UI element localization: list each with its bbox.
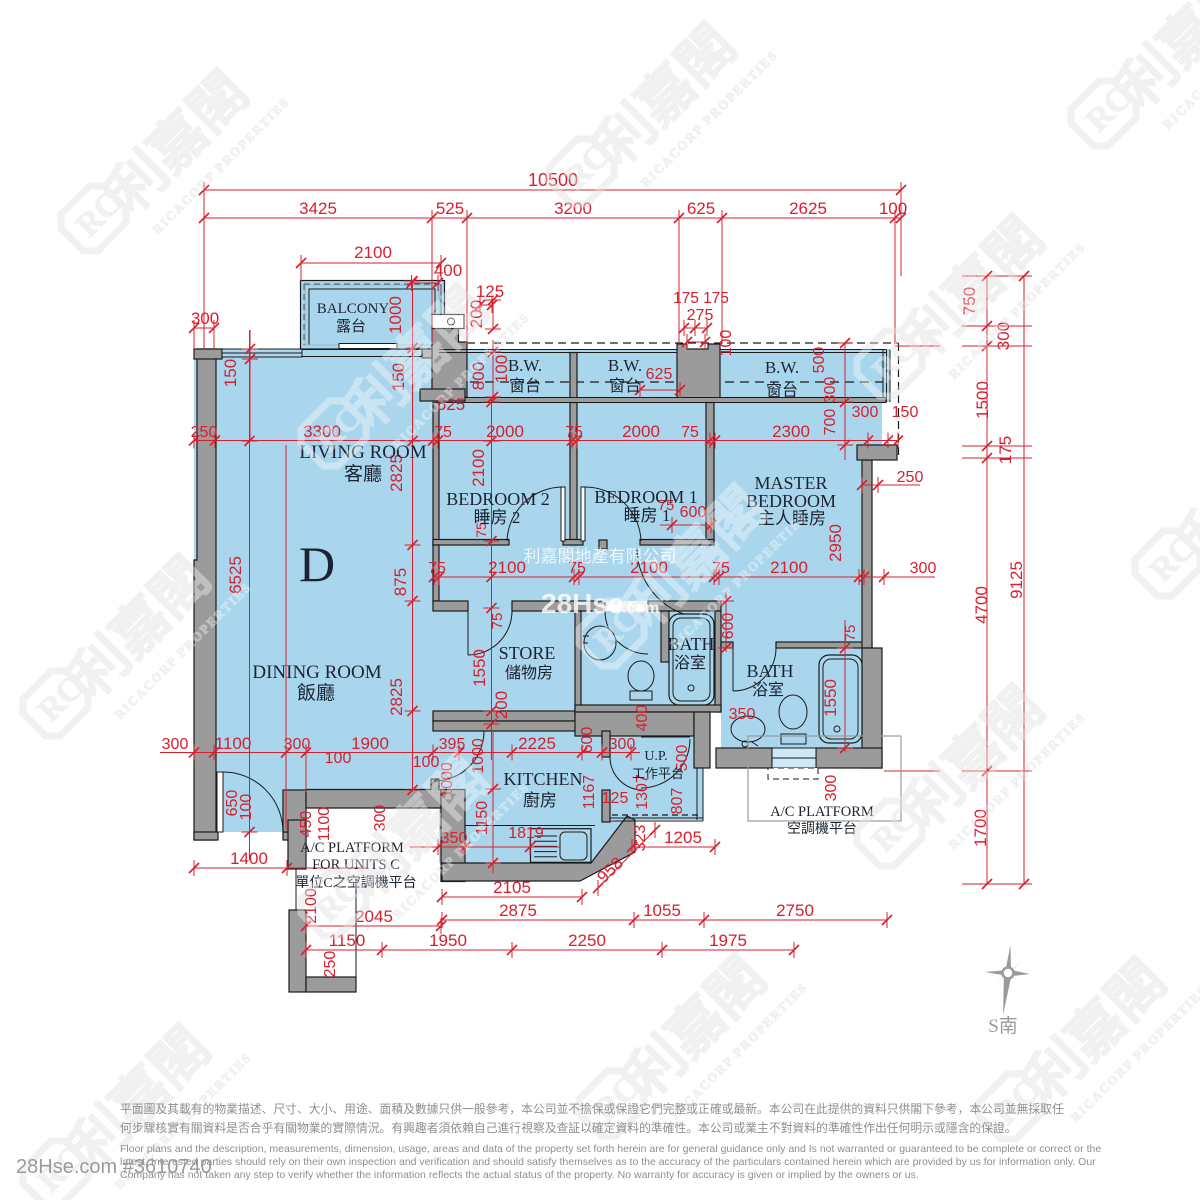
svg-text:150: 150 [221, 359, 240, 387]
svg-text:1550: 1550 [470, 649, 489, 687]
svg-text:1167: 1167 [581, 775, 598, 810]
svg-text:D: D [299, 536, 335, 592]
svg-text:窗台: 窗台 [509, 377, 541, 395]
svg-text:625: 625 [687, 199, 715, 218]
svg-text:B.W.: B.W. [508, 356, 542, 375]
svg-text:300: 300 [852, 404, 879, 421]
svg-text:250: 250 [897, 469, 924, 486]
svg-text:浴室: 浴室 [752, 681, 784, 699]
svg-text:300: 300 [822, 377, 839, 404]
svg-text:75: 75 [489, 613, 506, 630]
svg-text:2100: 2100 [354, 243, 392, 262]
svg-text:睡房 2: 睡房 2 [474, 508, 521, 527]
svg-text:75: 75 [428, 560, 446, 577]
svg-text:MASTER: MASTER [754, 473, 827, 493]
svg-text:400: 400 [434, 261, 462, 280]
svg-text:U.P.: U.P. [644, 749, 667, 764]
svg-text:1400: 1400 [230, 849, 268, 868]
svg-text:100: 100 [238, 794, 255, 821]
svg-text:250: 250 [191, 424, 218, 441]
svg-text:275: 275 [687, 307, 714, 324]
svg-text:600: 600 [720, 613, 737, 640]
svg-text:2950: 2950 [826, 524, 845, 562]
svg-text:300: 300 [284, 736, 311, 753]
svg-text:1950: 1950 [429, 931, 467, 950]
svg-text:9125: 9125 [1007, 561, 1026, 599]
svg-text:300: 300 [910, 560, 937, 577]
svg-text:700: 700 [822, 409, 839, 436]
svg-text:300: 300 [191, 309, 219, 328]
svg-text:工作平台: 工作平台 [632, 766, 684, 781]
svg-text:1550: 1550 [821, 679, 840, 717]
svg-text:525: 525 [436, 199, 464, 218]
svg-text:807: 807 [669, 788, 686, 815]
svg-text:2105: 2105 [493, 878, 531, 897]
svg-text:175: 175 [996, 436, 1015, 464]
svg-text:175: 175 [703, 290, 729, 307]
svg-text:B.W.: B.W. [765, 358, 799, 377]
svg-text:2225: 2225 [518, 734, 556, 753]
svg-text:飯廳: 飯廳 [297, 682, 335, 704]
svg-text:窗台: 窗台 [609, 377, 641, 395]
svg-text:BATH: BATH [746, 661, 793, 681]
svg-text:4700: 4700 [972, 586, 991, 624]
svg-text:.com: .com [622, 600, 659, 617]
svg-text:2625: 2625 [789, 199, 827, 218]
svg-text:浴室: 浴室 [674, 654, 706, 672]
svg-text:1975: 1975 [709, 931, 747, 950]
svg-text:BEDROOM 2: BEDROOM 2 [446, 489, 550, 509]
svg-text:625: 625 [646, 366, 673, 383]
svg-text:300: 300 [609, 736, 636, 753]
svg-text:450: 450 [298, 811, 315, 838]
svg-text:2825: 2825 [387, 678, 406, 716]
svg-text:latest. Interested parties sho: latest. Interested parties should rely o… [120, 1156, 1096, 1168]
svg-text:175: 175 [673, 290, 699, 307]
svg-text:空調機平台: 空調機平台 [787, 821, 857, 837]
svg-text:2875: 2875 [499, 901, 537, 920]
svg-text:75: 75 [434, 424, 452, 441]
svg-text:28Hse: 28Hse [541, 588, 624, 619]
svg-text:250: 250 [322, 951, 339, 978]
svg-text:100: 100 [879, 199, 907, 218]
svg-text:200: 200 [492, 691, 511, 719]
svg-text:STORE: STORE [499, 643, 556, 663]
svg-text:75: 75 [681, 424, 699, 441]
svg-text:Floor plans and the descriptio: Floor plans and the description, measure… [120, 1143, 1101, 1155]
svg-text:1819: 1819 [508, 825, 544, 842]
svg-text:何步驟核實有關資料是否合乎有關物業的實際情況。有興趣者須依賴: 何步驟核實有關資料是否合乎有關物業的實際情況。有興趣者須依賴自己進行視察及查証以… [120, 1121, 1017, 1135]
svg-text:400: 400 [634, 705, 651, 732]
svg-text:1100: 1100 [316, 807, 333, 842]
svg-text:2750: 2750 [776, 901, 814, 920]
svg-text:350: 350 [729, 706, 756, 723]
svg-text:875: 875 [391, 568, 410, 596]
svg-text:300: 300 [823, 775, 840, 802]
svg-text:3425: 3425 [299, 199, 337, 218]
svg-text:2100: 2100 [469, 449, 488, 487]
svg-text:2300: 2300 [772, 422, 810, 441]
svg-text:B.W.: B.W. [608, 356, 642, 375]
svg-text:125: 125 [476, 282, 504, 301]
svg-text:2000: 2000 [622, 422, 660, 441]
svg-text:500: 500 [811, 347, 828, 374]
svg-text:1900: 1900 [351, 734, 389, 753]
svg-text:睡房 1: 睡房 1 [624, 506, 671, 525]
svg-text:150: 150 [892, 404, 919, 421]
svg-text:BALCONY: BALCONY [317, 301, 390, 317]
svg-text:BEDROOM 1: BEDROOM 1 [594, 487, 698, 507]
svg-text:300: 300 [162, 736, 189, 753]
svg-text:露台: 露台 [336, 318, 366, 335]
svg-text:1100: 1100 [215, 734, 252, 753]
svg-text:DINING ROOM: DINING ROOM [252, 662, 381, 683]
svg-text:2250: 2250 [568, 931, 606, 950]
svg-text:Company has not taken any step: Company has not taken any step to verify… [120, 1169, 919, 1181]
svg-text:1055: 1055 [643, 901, 681, 920]
svg-text:600: 600 [579, 727, 596, 754]
svg-text:100: 100 [325, 750, 352, 767]
svg-text:125: 125 [602, 790, 629, 807]
svg-text:儲物房: 儲物房 [505, 664, 553, 682]
svg-text:平面圖及其載有的物業描述、尺寸、大小、用途、面積及數據只供一: 平面圖及其載有的物業描述、尺寸、大小、用途、面積及數據只供一般參考，本公司並不擔… [120, 1102, 1064, 1116]
svg-text:A/C PLATFORM: A/C PLATFORM [770, 804, 874, 820]
svg-text:28Hse.com #3610740: 28Hse.com #3610740 [16, 1156, 212, 1178]
svg-text:1500: 1500 [973, 381, 992, 419]
svg-text:2100: 2100 [488, 558, 526, 577]
svg-text:客廳: 客廳 [344, 463, 382, 485]
svg-text:窗台: 窗台 [766, 382, 798, 400]
svg-text:利嘉閣地產有限公司: 利嘉閣地產有限公司 [524, 547, 677, 566]
svg-text:S南: S南 [988, 1015, 1018, 1037]
svg-text:1205: 1205 [664, 828, 702, 847]
svg-text:100: 100 [718, 330, 735, 357]
svg-text:75: 75 [565, 424, 583, 441]
svg-text:2100: 2100 [770, 558, 808, 577]
